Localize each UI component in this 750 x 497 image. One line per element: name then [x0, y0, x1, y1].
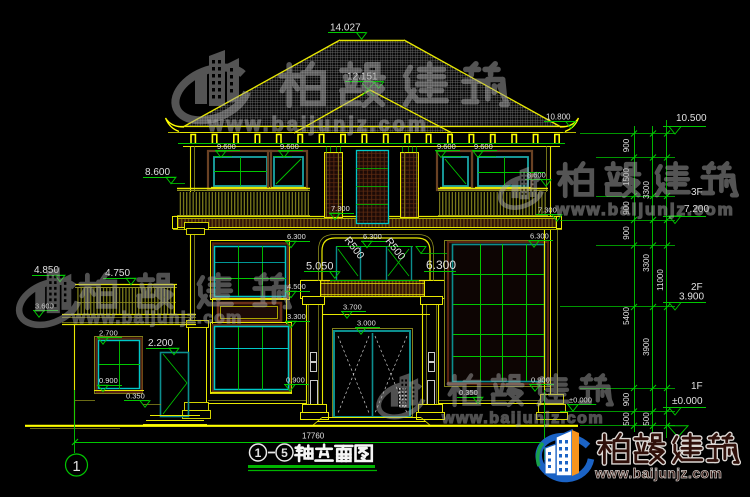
svg-text:2.700: 2.700 — [99, 329, 118, 338]
svg-text:2.200: 2.200 — [148, 338, 173, 349]
svg-text:9.600: 9.600 — [280, 142, 299, 151]
svg-text:1: 1 — [72, 458, 80, 475]
svg-text:0.900: 0.900 — [286, 376, 305, 385]
svg-text:1F: 1F — [691, 381, 703, 392]
svg-text:11000: 11000 — [656, 269, 665, 291]
svg-text:0.350: 0.350 — [126, 392, 145, 401]
svg-text:3.300: 3.300 — [287, 312, 306, 321]
svg-text:4.750: 4.750 — [105, 268, 130, 279]
svg-text:0.900: 0.900 — [99, 376, 118, 385]
svg-text:www.baijunjz.com: www.baijunjz.com — [555, 200, 735, 219]
svg-text:4.500: 4.500 — [287, 282, 306, 291]
svg-text:3300: 3300 — [642, 181, 651, 199]
svg-text:7.300: 7.300 — [331, 204, 350, 213]
svg-text:3.700: 3.700 — [343, 303, 362, 312]
svg-text:5: 5 — [281, 446, 288, 460]
svg-text:500: 500 — [642, 412, 651, 426]
svg-text:1: 1 — [255, 446, 262, 460]
svg-text:www.baijunjz.com: www.baijunjz.com — [207, 114, 429, 136]
svg-text:7.300: 7.300 — [538, 206, 557, 215]
svg-text:6.300: 6.300 — [426, 258, 456, 272]
svg-text:3.000: 3.000 — [357, 319, 376, 328]
svg-text:3900: 3900 — [642, 338, 651, 356]
svg-text:www.baijunjz.com: www.baijunjz.com — [71, 308, 243, 327]
svg-text:6.300: 6.300 — [363, 232, 382, 241]
svg-text:5400: 5400 — [622, 307, 631, 325]
svg-text:9.600: 9.600 — [437, 142, 456, 151]
svg-text:3300: 3300 — [642, 254, 651, 272]
svg-text:900: 900 — [622, 392, 631, 406]
svg-text:5.050: 5.050 — [306, 261, 334, 273]
svg-text:14.027: 14.027 — [330, 23, 361, 34]
svg-text:6.300: 6.300 — [530, 232, 549, 241]
svg-text:900: 900 — [622, 226, 631, 240]
svg-text:10.800: 10.800 — [546, 113, 571, 122]
svg-text:±0.000: ±0.000 — [672, 396, 703, 407]
svg-text:3.900: 3.900 — [679, 292, 704, 303]
svg-text:9.600: 9.600 — [217, 142, 236, 151]
svg-text:17760: 17760 — [302, 432, 325, 441]
svg-text:10.500: 10.500 — [676, 113, 707, 124]
svg-text:8.600: 8.600 — [145, 167, 170, 178]
svg-text:www.baijunjz.com: www.baijunjz.com — [441, 410, 604, 427]
svg-text:900: 900 — [622, 138, 631, 152]
svg-text:6.300: 6.300 — [287, 232, 306, 241]
svg-text:500: 500 — [622, 412, 631, 426]
svg-text:9.600: 9.600 — [474, 142, 493, 151]
svg-text:www.baijunjz.com: www.baijunjz.com — [594, 465, 722, 481]
